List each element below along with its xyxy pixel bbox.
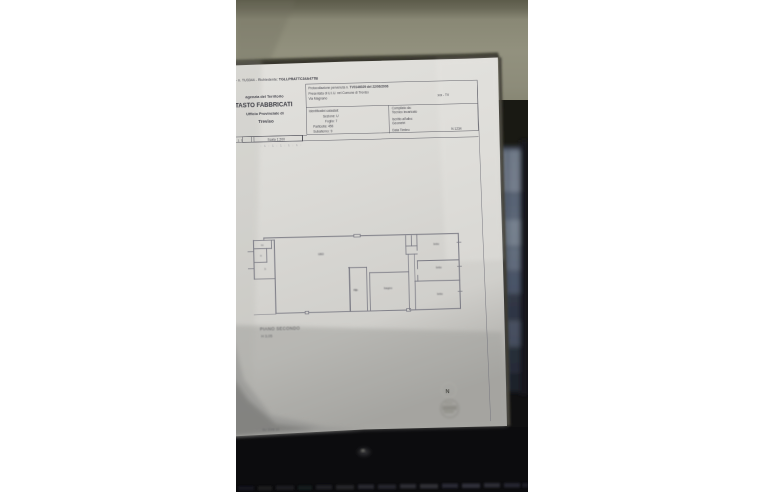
svg-text:Via Magnano: Via Magnano xyxy=(308,96,327,100)
svg-text:uso: uso xyxy=(318,252,324,256)
svg-text:Data Timbro: Data Timbro xyxy=(392,128,410,132)
svg-text:Tecnico incaricato: Tecnico incaricato xyxy=(392,110,418,115)
svg-text:Sezione: U: Sezione: U xyxy=(323,114,339,118)
svg-text:bagno: bagno xyxy=(384,286,393,290)
svg-text:letto: letto xyxy=(436,265,442,269)
svg-text:1. 1: 1. 1 xyxy=(237,139,243,143)
svg-text:Subalterno: 9: Subalterno: 9 xyxy=(313,129,332,133)
svg-text:N 1234: N 1234 xyxy=(451,127,462,131)
svg-text:Geometri: Geometri xyxy=(392,121,405,125)
svg-text:SU 2006 10: SU 2006 10 xyxy=(262,428,279,432)
svg-text:letto: letto xyxy=(437,292,443,296)
svg-text:Particella: 456: Particella: 456 xyxy=(313,124,334,128)
svg-text:PIANO SECONDO: PIANO SECONDO xyxy=(260,326,301,332)
svg-text:N: N xyxy=(445,389,449,395)
svg-text:letto: letto xyxy=(433,242,439,246)
svg-text:rip.: rip. xyxy=(354,288,359,292)
svg-text:Foglio: 7: Foglio: 7 xyxy=(325,119,338,123)
svg-text:Identificativi catastali:: Identificativi catastali: xyxy=(309,109,339,114)
svg-text:Treviso: Treviso xyxy=(258,119,274,124)
svg-text:H 3,05: H 3,05 xyxy=(261,334,272,338)
svg-text:Scala 1:200: Scala 1:200 xyxy=(267,137,285,141)
svg-text:xxx - TV: xxx - TV xyxy=(437,93,450,97)
